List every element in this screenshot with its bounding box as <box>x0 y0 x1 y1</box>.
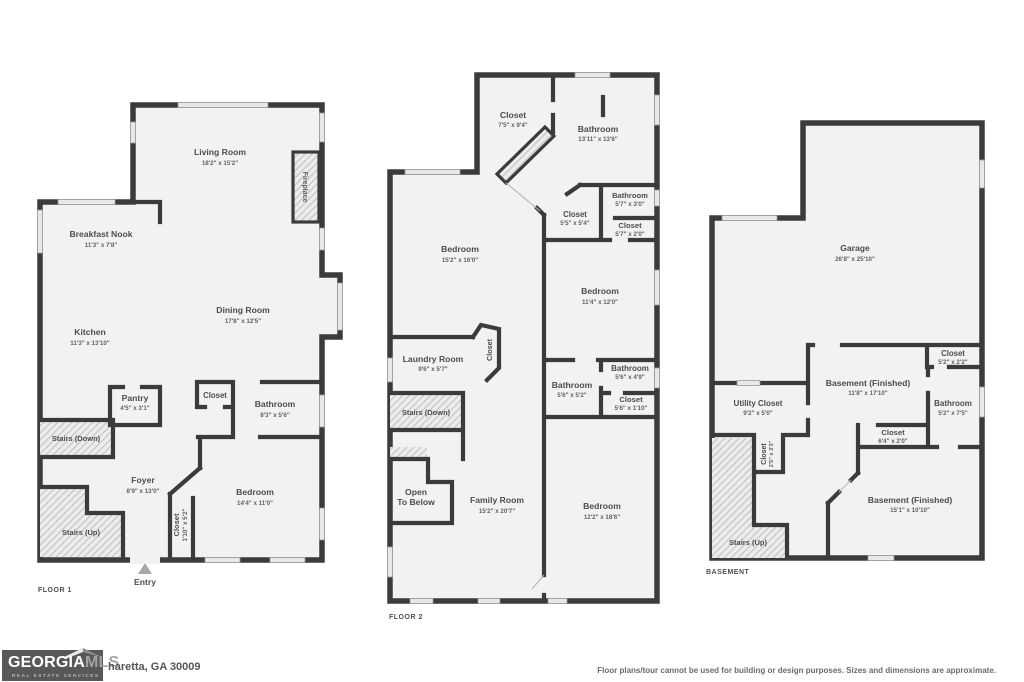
stairs-down-label: Stairs (Down) <box>52 434 101 443</box>
mid-closet-label: Closet <box>881 428 905 437</box>
window <box>575 73 610 78</box>
pantry-label: Pantry <box>122 393 149 403</box>
bedroom-front-dims: 15'2" x 16'0" <box>442 257 478 264</box>
window <box>980 387 985 417</box>
top-closet-dims: 5'2" x 2'2" <box>938 359 968 366</box>
bedroom-rear-label: Bedroom <box>583 501 621 511</box>
window <box>655 368 660 388</box>
logo-tagline: REAL ESTATE SERVICES <box>12 673 100 678</box>
family-room-label: Family Room <box>470 495 524 505</box>
entry-opening <box>130 556 160 564</box>
dining-room-label: Dining Room <box>216 305 270 315</box>
mid-closet-dims: 6'4" x 2'0" <box>878 438 908 445</box>
window <box>655 95 660 125</box>
window <box>320 508 325 540</box>
bedroom-front-label: Bedroom <box>441 244 479 254</box>
family-room-dims: 15'2" x 20'7" <box>479 508 515 515</box>
window <box>320 228 325 250</box>
kitchen-dims: 11'3" x 13'10" <box>70 340 110 347</box>
bathroom-dims: 8'3" x 5'6" <box>260 412 290 419</box>
window <box>655 270 660 305</box>
window <box>737 381 760 386</box>
entry-arrow-icon <box>138 563 152 574</box>
floor2-stairs-hatch-strip <box>390 447 427 458</box>
window <box>338 283 343 330</box>
basement-bathroom-label: Bathroom <box>934 399 972 408</box>
utility-closet-dims: 9'2" x 5'0" <box>743 410 773 417</box>
kitchen-label: Kitchen <box>74 327 106 337</box>
window <box>320 395 325 427</box>
mid-closet-dims: 5'5" x 5'4" <box>560 220 590 227</box>
right-bathroom-dims: 5'6" x 4'9" <box>615 374 645 381</box>
bathroom-label: Bathroom <box>255 399 296 409</box>
small-closet-label: Closet <box>618 221 642 230</box>
laundry-closet-label: Closet <box>485 338 494 361</box>
right-closet-dims: 5'6" x 1'10" <box>615 405 648 412</box>
georgia-mls-logo: GEORGIAMLS REAL ESTATE SERVICES <box>2 650 103 681</box>
floor2-title: FLOOR 2 <box>389 614 423 621</box>
laundry-room-dims: 9'6" x 5'7" <box>418 366 448 373</box>
stairs-closet-label: Closet <box>761 443 768 465</box>
laundry-room-label: Laundry Room <box>403 354 464 364</box>
top-closet-label: Closet <box>941 349 965 358</box>
dining-room-dims: 17'8" x 12'5" <box>225 318 261 325</box>
window <box>478 599 500 604</box>
stairs-down-label: Stairs (Down) <box>402 408 451 417</box>
stairs-up-label: Stairs (Up) <box>62 528 100 537</box>
finished-b-dims: 15'1" x 10'10" <box>890 507 930 514</box>
property-address: haretta, GA 30009 <box>108 661 201 673</box>
logo-georgia: GEORGIA <box>8 654 85 671</box>
small-bathroom-label: Bathroom <box>612 191 648 200</box>
window <box>655 190 660 206</box>
window <box>410 599 433 604</box>
garage-label: Garage <box>840 243 870 253</box>
upper-closet-dims: 7'5" x 9'4" <box>498 122 528 129</box>
breakfast-nook-label: Breakfast Nook <box>69 229 132 239</box>
floor1-plan: Living Room 18'2" x 15'2" Breakfast Nook… <box>35 95 345 600</box>
disclaimer-text: Floor plans/tour cannot be used for buil… <box>597 666 996 675</box>
garage-dims: 26'8" x 25'10" <box>835 256 875 263</box>
window <box>58 200 115 205</box>
window <box>270 558 305 563</box>
foyer-dims: 8'9" x 13'0" <box>127 488 160 495</box>
hall-bathroom-label: Bathroom <box>552 380 593 390</box>
foyer-label: Foyer <box>131 475 155 485</box>
upper-closet-label: Closet <box>500 110 526 120</box>
window <box>38 210 43 253</box>
basement-plan: Garage 26'8" x 25'10" Closet 5'2" x 2'2"… <box>705 115 990 580</box>
upper-bathroom-dims: 13'11" x 13'6" <box>578 136 618 143</box>
basement-title: BASEMENT <box>706 569 750 576</box>
window <box>548 599 567 604</box>
entry-label: Entry <box>134 577 156 587</box>
window <box>320 113 325 142</box>
basement-bathroom-dims: 5'2" x 7'5" <box>938 410 968 417</box>
floor2-plan: Closet 7'5" x 9'4" Bathroom 13'11" x 13'… <box>385 70 675 625</box>
window <box>205 558 240 563</box>
living-room-label: Living Room <box>194 147 246 157</box>
window <box>980 160 985 188</box>
breakfast-nook-dims: 11'3" x 7'8" <box>85 242 118 249</box>
open-to-below-line1: Open <box>405 487 427 497</box>
living-room-dims: 18'2" x 15'2" <box>202 160 238 167</box>
window <box>388 358 393 382</box>
entry-closet-dims: 1'10" x 5'2" <box>182 508 189 541</box>
window <box>722 216 777 221</box>
window <box>178 103 268 108</box>
small-bathroom-dims: 5'7" x 3'0" <box>615 201 645 208</box>
right-bathroom-label: Bathroom <box>611 364 649 373</box>
window <box>868 556 894 561</box>
finished-b-label: Basement (Finished) <box>868 495 953 505</box>
window <box>405 170 460 175</box>
logo-text: GEORGIAMLS <box>8 654 119 672</box>
open-to-below-line2: To Below <box>397 497 435 507</box>
mid-closet-label: Closet <box>563 210 587 219</box>
pantry-dims: 4'5" x 3'1" <box>120 405 150 412</box>
hall-closet-label: Closet <box>203 391 227 400</box>
hall-bathroom-dims: 5'6" x 5'2" <box>557 392 587 399</box>
bedroom-right-dims: 11'4" x 12'0" <box>582 299 618 306</box>
right-closet-label: Closet <box>619 395 643 404</box>
bedroom-dims: 14'4" x 11'0" <box>237 500 273 507</box>
floor1-title: FLOOR 1 <box>38 587 72 594</box>
fireplace-label: Fireplace <box>301 172 308 203</box>
utility-closet-label: Utility Closet <box>734 399 783 408</box>
finished-a-label: Basement (Finished) <box>826 378 911 388</box>
window <box>388 547 393 577</box>
bedroom-label: Bedroom <box>236 487 274 497</box>
bedroom-rear-dims: 12'2" x 18'6" <box>584 514 620 521</box>
window <box>131 122 136 143</box>
stairs-up-label: Stairs (Up) <box>729 538 767 547</box>
finished-a-dims: 11'8" x 17'10" <box>848 390 888 397</box>
entry-closet-label: Closet <box>172 513 181 536</box>
upper-bathroom-label: Bathroom <box>578 124 619 134</box>
floorplan-sheet: Living Room 18'2" x 15'2" Breakfast Nook… <box>0 0 1024 682</box>
stairs-closet-dims: 2'5" x 3'3" <box>769 440 775 467</box>
bedroom-right-label: Bedroom <box>581 286 619 296</box>
small-closet-dims: 5'7" x 2'0" <box>615 231 645 238</box>
